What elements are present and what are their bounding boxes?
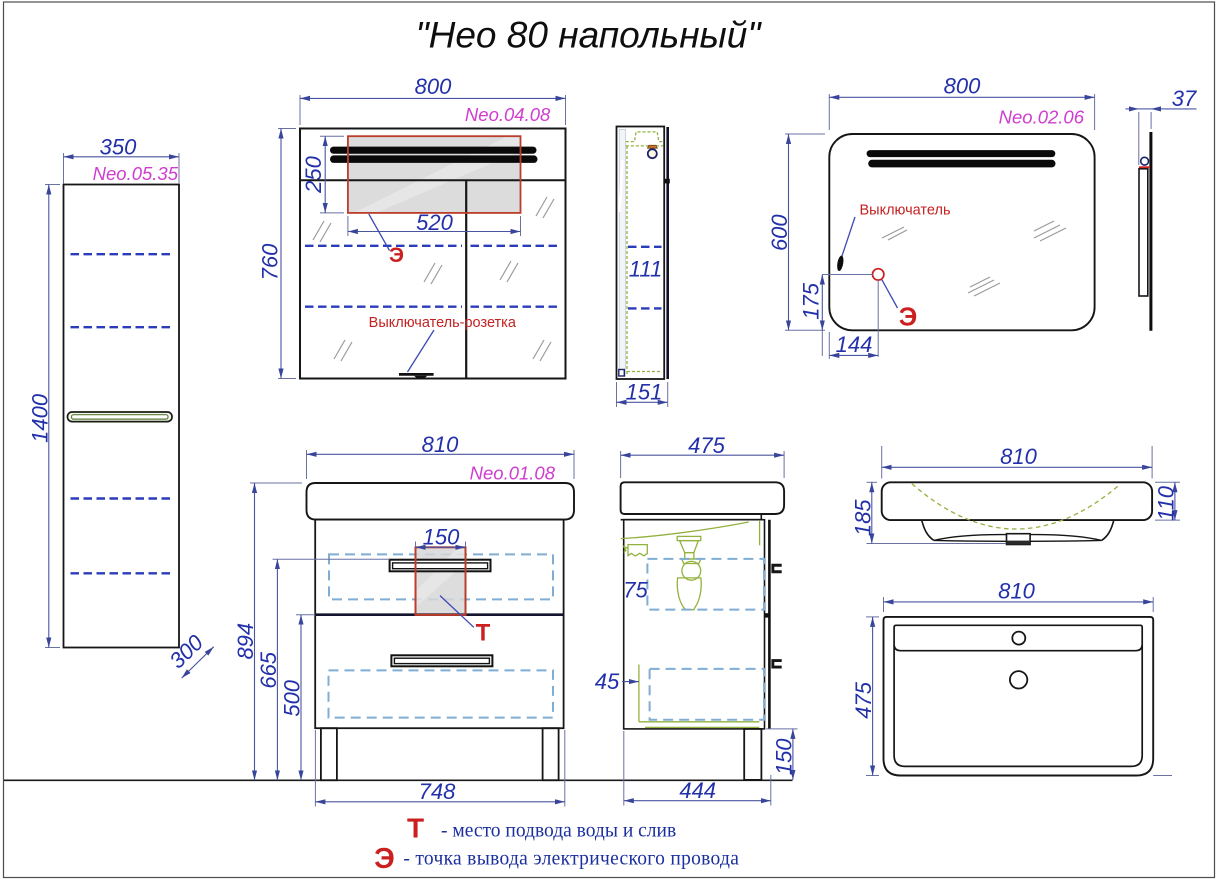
svg-text:Э: Э bbox=[389, 244, 404, 267]
svg-text:475: 475 bbox=[688, 433, 725, 458]
svg-text:37: 37 bbox=[1172, 86, 1197, 111]
svg-text:350: 350 bbox=[100, 135, 137, 160]
svg-text:Выключатель: Выключатель bbox=[860, 203, 951, 219]
svg-text:1400: 1400 bbox=[27, 393, 52, 443]
svg-text:45: 45 bbox=[595, 669, 620, 694]
svg-text:- место подвода воды и слив: - место подвода воды и слив bbox=[441, 821, 676, 842]
svg-text:250: 250 bbox=[301, 155, 326, 193]
svg-text:Neo.04.08: Neo.04.08 bbox=[465, 104, 551, 125]
svg-text:665: 665 bbox=[256, 651, 281, 688]
svg-text:- точка вывода электрического: - точка вывода электрического провода bbox=[403, 849, 739, 870]
svg-text:810: 810 bbox=[998, 579, 1035, 604]
svg-text:500: 500 bbox=[280, 679, 305, 716]
svg-text:748: 748 bbox=[419, 779, 456, 804]
svg-text:175: 175 bbox=[799, 282, 824, 319]
svg-text:Э: Э bbox=[899, 302, 918, 332]
svg-text:760: 760 bbox=[258, 243, 283, 280]
svg-text:Neo.02.06: Neo.02.06 bbox=[999, 107, 1085, 128]
svg-text:520: 520 bbox=[416, 210, 453, 235]
svg-text:75: 75 bbox=[623, 578, 648, 603]
svg-text:150: 150 bbox=[771, 738, 796, 775]
svg-text:600: 600 bbox=[767, 214, 792, 251]
svg-text:475: 475 bbox=[851, 681, 876, 718]
svg-text:894: 894 bbox=[233, 623, 258, 660]
svg-text:Э: Э bbox=[374, 843, 395, 875]
svg-text:Выключатель-розетка: Выключатель-розетка bbox=[369, 315, 517, 331]
svg-text:"Нео 80 напольный": "Нео 80 напольный" bbox=[416, 15, 763, 56]
svg-text:150: 150 bbox=[423, 525, 460, 550]
svg-text:111: 111 bbox=[629, 257, 662, 282]
svg-text:800: 800 bbox=[415, 74, 452, 99]
svg-text:810: 810 bbox=[422, 432, 459, 457]
svg-text:144: 144 bbox=[836, 332, 873, 357]
svg-text:800: 800 bbox=[944, 74, 981, 99]
svg-text:Neo.01.08: Neo.01.08 bbox=[470, 463, 556, 484]
svg-text:Т: Т bbox=[476, 620, 491, 647]
svg-text:110: 110 bbox=[1153, 485, 1178, 521]
svg-text:Neo.05.35: Neo.05.35 bbox=[93, 163, 179, 184]
svg-text:810: 810 bbox=[1000, 444, 1037, 469]
svg-text:444: 444 bbox=[679, 778, 716, 803]
svg-text:Т: Т bbox=[407, 813, 424, 844]
svg-text:151: 151 bbox=[626, 380, 663, 405]
svg-text:185: 185 bbox=[850, 499, 875, 536]
